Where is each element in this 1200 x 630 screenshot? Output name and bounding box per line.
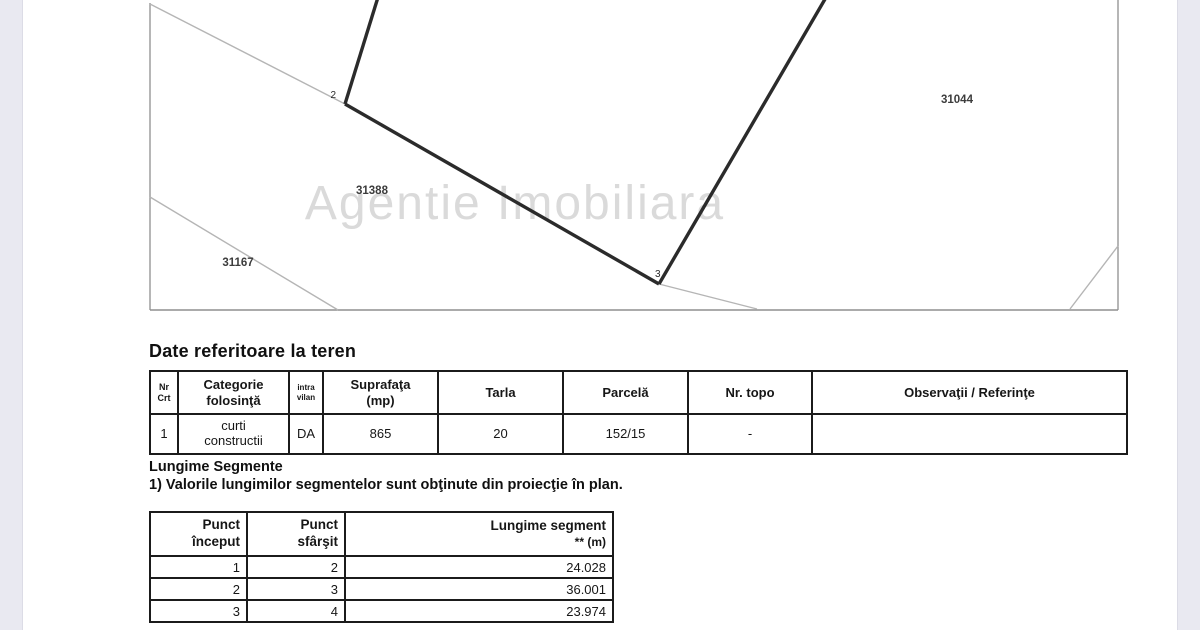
header-line: Punct [250,517,338,534]
point-label: 3 [655,269,661,280]
cell-punct-inceput: 1 [150,556,247,578]
teren-table-header-row: Nr Crt Categorie folosinţă intra vilan S… [150,371,1127,414]
segments-table-header-row: Punct început Punct sfârşit Lungime segm… [150,512,613,556]
header-line: Punct [153,517,240,534]
point-label: 2 [330,90,336,101]
property-segment-1-2 [345,0,379,104]
cell-parcela: 152/15 [563,414,688,454]
cell-categorie: curti constructii [178,414,289,454]
header-tarla: Tarla [438,371,563,414]
header-intravilan: intra vilan [289,371,323,414]
cell-lungime-segment: 23.974 [345,600,613,622]
parcel-number-label: 31388 [356,185,389,197]
property-segment-3-4 [659,0,828,284]
teren-table: Nr Crt Categorie folosinţă intra vilan S… [149,370,1128,455]
header-lungime-segment: Lungime segment ** (m) [345,512,613,556]
header-nr-crt: Nr Crt [150,371,178,414]
teren-table-data-row: 1 curti constructii DA 865 20 152/15 - [150,414,1127,454]
header-parcela: Parcelă [563,371,688,414]
cell-punct-inceput: 3 [150,600,247,622]
cell-punct-inceput: 2 [150,578,247,600]
header-categorie: Categorie folosinţă [178,371,289,414]
cell-punct-sfarsit: 4 [247,600,345,622]
cadastral-document-page: Agentie Imobiliara 2 3 31388 31167 31044… [0,0,1200,630]
boundary-line [1070,246,1118,309]
cell-punct-sfarsit: 2 [247,556,345,578]
header-line: început [153,534,240,551]
cell-lungime-segment: 24.028 [345,556,613,578]
cell-tarla: 20 [438,414,563,454]
header-suprafata: Suprafaţa (mp) [323,371,438,414]
header-observatii: Observaţii / Referinţe [812,371,1127,414]
cell-lungime-segment: 36.001 [345,578,613,600]
cadastral-plan-map: Agentie Imobiliara 2 3 31388 31167 31044 [0,0,1200,318]
segments-table: Punct început Punct sfârşit Lungime segm… [149,511,614,623]
header-line: Lungime segment [348,518,606,535]
segment-row: 2 3 36.001 [150,578,613,600]
segment-row: 1 2 24.028 [150,556,613,578]
segments-note: 1) Valorile lungimilor segmentelor sunt … [149,477,623,493]
header-line: sfârşit [250,534,338,551]
cell-suprafata: 865 [323,414,438,454]
header-line: ** (m) [348,535,606,550]
cell-nr-crt: 1 [150,414,178,454]
boundary-line [659,284,757,309]
header-punct-inceput: Punct început [150,512,247,556]
cell-observatii [812,414,1127,454]
cell-nr-topo: - [688,414,812,454]
parcel-number-label: 31044 [941,94,974,106]
parcel-number-label: 31167 [222,257,253,269]
header-punct-sfarsit: Punct sfârşit [247,512,345,556]
boundary-line [150,4,345,104]
teren-section-title: Date referitoare la teren [149,341,356,362]
header-nr-topo: Nr. topo [688,371,812,414]
cell-intravilan: DA [289,414,323,454]
segments-section-title: Lungime Segmente [149,459,283,475]
cell-punct-sfarsit: 3 [247,578,345,600]
segment-row: 3 4 23.974 [150,600,613,622]
